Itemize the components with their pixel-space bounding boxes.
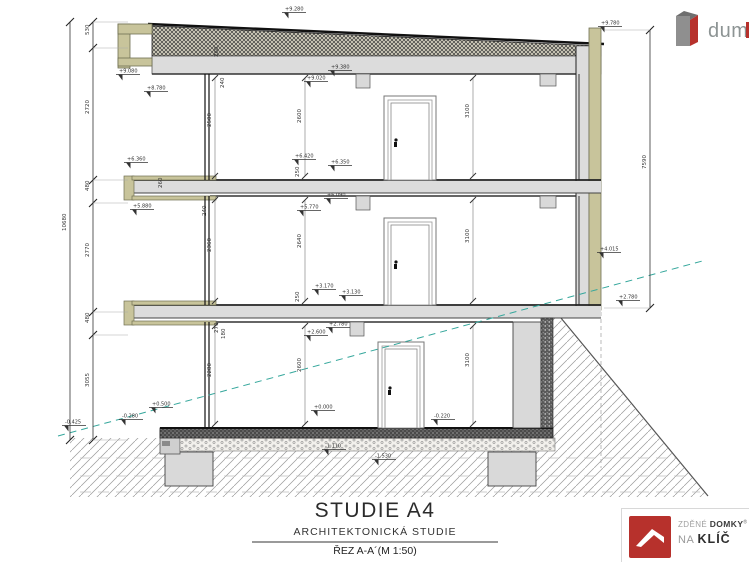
dimension-label: 3100 (465, 229, 471, 243)
svg-text:+9.080: +9.080 (119, 69, 138, 75)
svg-text:+8.780: +8.780 (147, 86, 166, 92)
right-wall-core (576, 46, 589, 310)
dimension-label: 2500 (207, 113, 213, 127)
svg-text:+3.130: +3.130 (342, 290, 361, 296)
parapet-left (118, 24, 152, 68)
elevation-mark: +2.600 (304, 330, 328, 342)
dimension-label: 2600 (297, 109, 303, 123)
elevation-mark: +6.420 (292, 154, 316, 166)
brand-word-na: NA (678, 534, 694, 546)
dimension-label: 250 (295, 166, 301, 177)
title-divider (252, 541, 498, 543)
dimension-label: 250 (295, 291, 301, 302)
top-logo: dum (672, 6, 749, 54)
elevation-mark: +6.350 (328, 160, 352, 172)
svg-text:+9.380: +9.380 (331, 65, 350, 71)
elevation-mark: +2.780 (616, 295, 640, 307)
dimension-label: 2360 (207, 238, 213, 252)
elevation-mark: +3.170 (312, 284, 336, 296)
elevation-mark: +0.000 (311, 405, 335, 417)
svg-text:+6.350: +6.350 (331, 160, 350, 166)
svg-text:+6.420: +6.420 (295, 154, 314, 160)
insulation-block (162, 441, 170, 446)
ground-slab (160, 428, 553, 438)
brand-word-zdene: ZDĚNÉ (678, 520, 707, 529)
dimension-label: 2600 (297, 358, 303, 372)
dimension-label: 260 (158, 177, 164, 188)
section-drawing: 5302720480277048030551068075902500260031… (0, 0, 749, 562)
svg-text:+9.280: +9.280 (285, 7, 304, 13)
svg-text:-0.280: -0.280 (122, 414, 138, 420)
dimension-label: 530 (85, 24, 91, 35)
door-ground-floor (378, 342, 424, 428)
brand-reg: ® (743, 519, 747, 525)
foundation-footing-right (488, 452, 536, 486)
svg-text:-1.110: -1.110 (325, 444, 341, 450)
svg-text:+4.015: +4.015 (600, 247, 619, 253)
svg-text:+2.780: +2.780 (619, 295, 638, 301)
dimension-label: 3055 (85, 373, 91, 387)
svg-text:+6.360: +6.360 (127, 157, 146, 163)
svg-text:+3.170: +3.170 (315, 284, 334, 290)
elevation-mark: +3.130 (339, 290, 363, 302)
foundation-footing-left (165, 452, 213, 486)
dimension-label: 7590 (642, 155, 648, 169)
dimension-label: 480 (85, 180, 91, 191)
sheet-name: ŘEZ A-A´(M 1:50) (250, 545, 500, 557)
brand-word-domky: DOMKY (710, 519, 744, 529)
elevation-mark: +8.780 (144, 86, 168, 98)
gravel-layer (180, 438, 555, 451)
ground-right-wall (513, 322, 541, 428)
elevation-mark: +5.880 (130, 204, 154, 216)
brand-word-klic: KLÍČ (698, 532, 731, 546)
svg-text:+5.880: +5.880 (133, 204, 152, 210)
svg-text:+9.020: +9.020 (307, 76, 326, 82)
sheet-title: STUDIE A4 (250, 499, 500, 523)
dimension-label: 480 (85, 312, 91, 323)
elevation-mark: -0.280 (119, 414, 143, 426)
elevation-mark: +0.500 (149, 402, 173, 414)
dimension-label: 10680 (62, 213, 68, 231)
floor-slab-3 (124, 301, 601, 325)
roof-icon (629, 516, 671, 558)
ceiling-beams (350, 74, 556, 336)
svg-text:+0.500: +0.500 (152, 402, 171, 408)
dimension-label: 260 (214, 46, 220, 57)
title-block: STUDIE A4 ARCHITEKTONICKÁ STUDIE ŘEZ A-A… (250, 499, 500, 557)
dimension-label: 3100 (465, 104, 471, 118)
elevation-mark: +9.080 (116, 69, 140, 81)
dimension-label: 2720 (85, 100, 91, 114)
svg-text:+9.780: +9.780 (601, 21, 620, 27)
dimension-label: 240 (202, 205, 208, 216)
elevation-mark: +6.360 (124, 157, 148, 169)
ground-right-wall-insulation (541, 318, 553, 428)
elevation-mark: -0.220 (431, 414, 455, 426)
svg-text:+0.000: +0.000 (314, 405, 333, 411)
elevation-mark: +2.780 (326, 322, 350, 334)
svg-text:+2.780: +2.780 (329, 322, 348, 328)
right-wall-insulation (589, 28, 601, 310)
dimension-label: 240 (220, 77, 226, 88)
building-logo-icon (672, 6, 708, 54)
sheet: 5302720480277048030551068075902500260031… (0, 0, 749, 562)
door-middle-floor (384, 218, 436, 305)
svg-text:-0.220: -0.220 (434, 414, 450, 420)
door-top-floor (384, 96, 436, 180)
elevation-mark: +9.020 (304, 76, 328, 88)
svg-text:+6.090: +6.090 (327, 193, 346, 199)
dimension-label: 3100 (465, 353, 471, 367)
brand-block: ZDĚNÉ DOMKY® NA KLÍČ (621, 508, 749, 562)
dimension-label: 270 (214, 322, 220, 333)
dimension-label: 180 (221, 328, 227, 339)
brand-line2: NA KLÍČ (678, 532, 747, 548)
elevation-mark: +5.770 (297, 205, 321, 217)
elevation-mark: +9.780 (598, 21, 622, 33)
top-logo-text: dum (708, 20, 748, 43)
svg-text:-1.530: -1.530 (375, 454, 391, 460)
dimension-label: 2770 (85, 243, 91, 257)
elevation-mark: +6.090 (324, 193, 348, 205)
svg-text:+5.770: +5.770 (300, 205, 319, 211)
dimension-label: 2640 (297, 234, 303, 248)
dimension-label: 2280 (207, 363, 213, 377)
svg-text:-0.425: -0.425 (65, 420, 81, 426)
roof-slab (152, 56, 601, 74)
sheet-subtitle: ARCHITEKTONICKÁ STUDIE (250, 526, 500, 538)
elevation-mark: +9.280 (282, 7, 306, 19)
brand-line1: ZDĚNÉ DOMKY® (678, 519, 747, 530)
svg-text:+2.600: +2.600 (307, 330, 326, 336)
brand-icon (629, 516, 671, 558)
